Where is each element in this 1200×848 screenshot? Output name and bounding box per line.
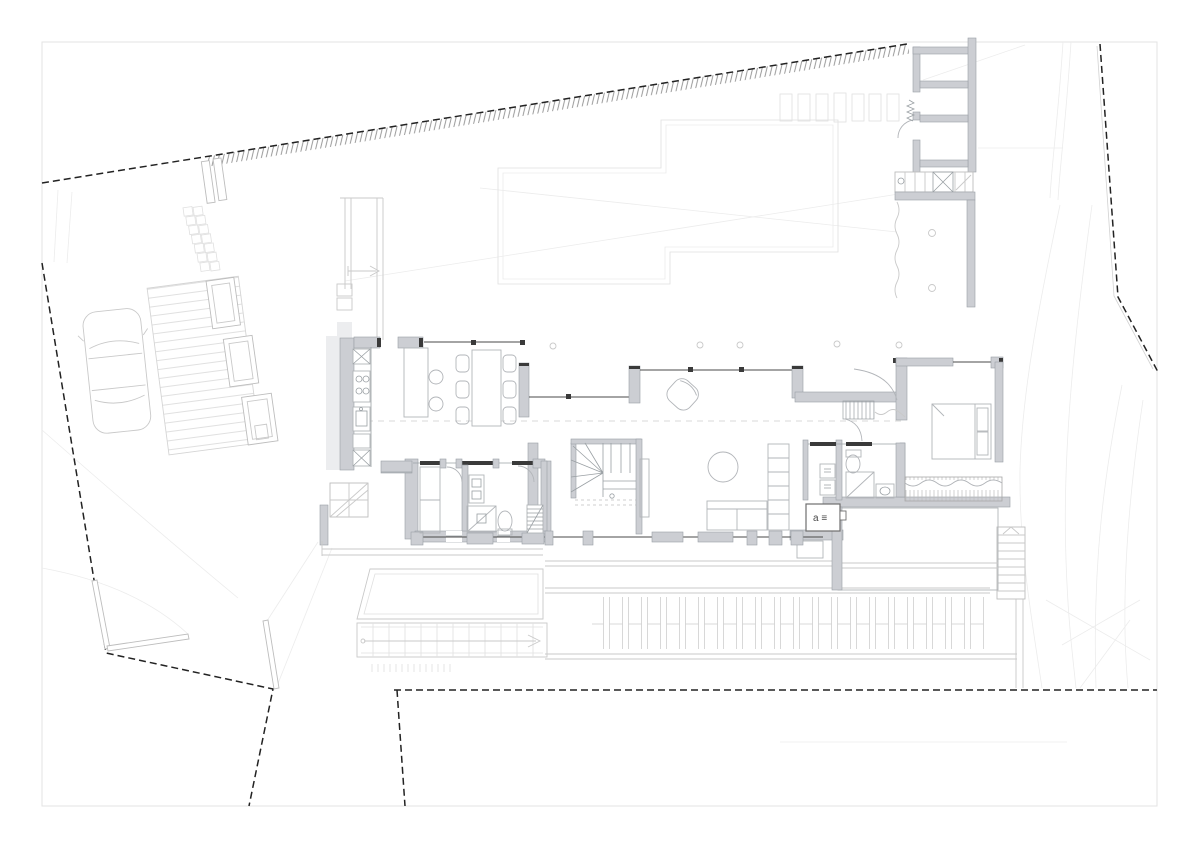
skylight-row <box>780 93 899 122</box>
terrace-column <box>929 285 936 292</box>
washer-icon <box>820 464 835 478</box>
access-ramp-with-arrow <box>357 623 547 657</box>
ladder-stair <box>527 505 543 533</box>
dining-chair <box>456 381 469 398</box>
dining-chair <box>503 407 516 424</box>
stepping-stone-path <box>183 204 220 274</box>
bar-stool <box>429 397 443 411</box>
entrance-gate <box>201 158 227 203</box>
hall-door-swing <box>845 419 862 441</box>
north-east-terrace <box>895 192 975 307</box>
bar-stool <box>429 370 443 384</box>
parked-car <box>76 307 158 436</box>
bathroom <box>467 466 534 535</box>
washbasin <box>876 484 894 498</box>
grass-ticks <box>372 664 450 672</box>
upper-floor-outline <box>498 120 838 284</box>
drawing-sheet: a ≡ <box>0 0 1200 848</box>
kitchen-island <box>404 348 428 417</box>
utility-room <box>420 467 462 533</box>
house-walls <box>326 336 1010 590</box>
dining-table <box>472 350 501 426</box>
bedroom-north-wall <box>896 358 953 366</box>
toilet <box>846 455 860 473</box>
hall-north-wall <box>795 392 900 402</box>
master-bathroom <box>846 450 894 498</box>
terrace-step-lines <box>545 561 832 566</box>
terrace-column <box>929 230 936 237</box>
equipment-label: a ≡ <box>813 513 827 524</box>
garden-stairs-east <box>997 527 1025 599</box>
kitchen <box>353 347 443 467</box>
bedroom-terrace <box>838 508 998 590</box>
dining-chair <box>503 381 516 398</box>
bookshelf <box>768 444 789 530</box>
cooktop <box>353 371 370 402</box>
lawn-terrace <box>322 541 543 619</box>
louver-deck-band <box>545 528 1023 688</box>
kitchen-west-wall <box>340 338 354 470</box>
bedroom <box>905 404 1002 501</box>
floor-plan-canvas: a ≡ <box>0 0 1200 848</box>
dryer-icon <box>820 480 835 495</box>
door-swing <box>447 467 462 482</box>
boundary-hatch-strip <box>205 44 910 167</box>
coffee-table <box>708 452 738 482</box>
equipment-box: a ≡ <box>806 504 846 531</box>
dining-chair <box>456 355 469 372</box>
bedroom-east-wall <box>995 362 1003 462</box>
retaining-walls <box>92 580 279 689</box>
exterior-steps-west <box>320 483 368 545</box>
dining-chair <box>456 407 469 424</box>
living-area <box>663 375 789 530</box>
dining-chair <box>503 355 516 372</box>
storage-building <box>898 38 976 172</box>
hall-steps <box>843 401 874 419</box>
garden-ramp-hatched <box>895 172 973 192</box>
laundry <box>820 464 835 495</box>
built-in-wardrobe <box>905 477 1002 501</box>
dining-area <box>456 350 516 426</box>
column-markers <box>550 341 902 349</box>
toilet <box>498 511 512 531</box>
